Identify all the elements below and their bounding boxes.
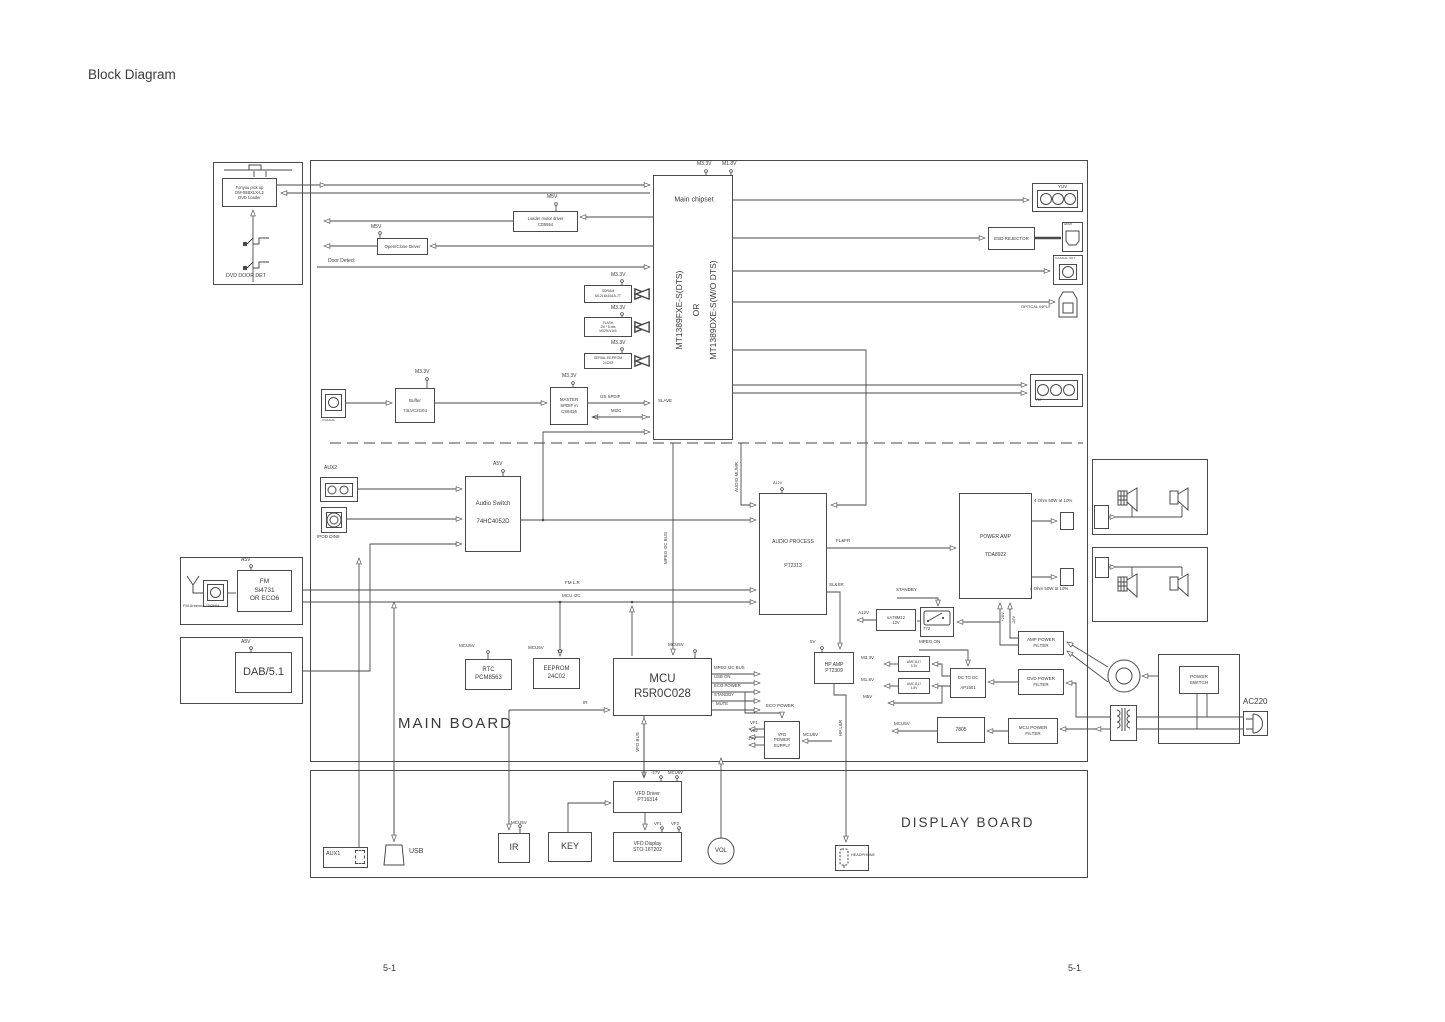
speaker-icon-1a bbox=[1118, 488, 1137, 511]
vfd-display-line-1: STO-16T202 bbox=[633, 847, 662, 854]
buffer-line-1: 74LVC2G04 bbox=[403, 408, 427, 414]
dvd-power-filter: DVD POWERFILTER bbox=[1018, 669, 1064, 695]
amc1117-18-line-1: 1.8V bbox=[911, 686, 918, 690]
mcu5v-supply: MCU5V bbox=[803, 733, 818, 737]
reg-7805: 7805 bbox=[937, 717, 985, 743]
footer-left: 5-1 bbox=[383, 964, 396, 973]
main-board-label: MAIN BOARD bbox=[398, 716, 513, 731]
speaker-icon-1b bbox=[1170, 488, 1188, 510]
serial-eeprom: SERIAL EEPROM24C02 bbox=[584, 353, 632, 369]
esd-rejector-line-0: ESD REJECTOR bbox=[994, 236, 1029, 242]
amc1117-33-line-1: 3.3V bbox=[911, 664, 918, 668]
slsr: SL&SR bbox=[829, 583, 844, 588]
esd-rejector: ESD REJECTOR bbox=[988, 227, 1035, 250]
key-block: KEY bbox=[548, 832, 592, 862]
ipod-din-icon bbox=[327, 513, 341, 527]
eeprom: EEPROM24C02 bbox=[533, 658, 580, 689]
m33-sdram: M3.3V bbox=[611, 273, 625, 278]
av-jacks-icon bbox=[1038, 385, 1075, 396]
dvd-power-filter-line-1: FILTER bbox=[1033, 682, 1048, 688]
eeprom-line-1: 24C02 bbox=[548, 674, 566, 682]
open-close-driver-line-0: Open/Close Driver bbox=[384, 244, 420, 250]
hp-amp: HP AMPPT2309 bbox=[814, 652, 854, 684]
vol-label: VOL bbox=[715, 848, 727, 854]
a12v-reg: A12V bbox=[858, 611, 869, 616]
fm-antenna-label: FM Antenna 75OHM bbox=[183, 604, 219, 608]
wires bbox=[228, 185, 1243, 847]
display-board-label: DISPLAY BOARD bbox=[901, 816, 1035, 830]
sdram: SDRAMM12L64164A-7T bbox=[584, 285, 632, 303]
dvd-loader: Fonyou pick upDM-06BXLX-L2DVD Loader bbox=[222, 178, 277, 207]
usb-label: USB bbox=[409, 848, 423, 855]
m5v-open-close: M5V bbox=[371, 225, 381, 230]
loader-motor-driver-line-1: CD5954 bbox=[538, 222, 553, 227]
m18-chipset: M1.8V bbox=[722, 162, 736, 167]
audio-switch-line-1: 74HC4052D bbox=[476, 519, 509, 527]
amc1117-33: AMC11173.3V bbox=[898, 656, 930, 672]
m33-amc: M3.3V bbox=[861, 656, 874, 661]
ir-receiver-line-0: IR bbox=[510, 842, 519, 854]
usb-connector-icon bbox=[384, 845, 404, 865]
standby-772: STANDBY bbox=[896, 588, 917, 593]
mcu-line-0: MCU bbox=[649, 672, 675, 687]
yuv-jacks-icon bbox=[1041, 194, 1076, 205]
coaxial-out-label: COAXIAL OUT bbox=[1055, 257, 1075, 260]
page-title: Block Diagram bbox=[88, 68, 176, 82]
amc1117-18: AMC11171.8V bbox=[898, 678, 930, 694]
dc-to-dc-line-1: AP1501 bbox=[960, 685, 975, 691]
flfr: FL&FR bbox=[836, 539, 850, 544]
m33-serial: M3.3V bbox=[611, 341, 625, 346]
audio-ml-mr: AUDIO ML/MR bbox=[735, 462, 740, 492]
speaker-icon-2a bbox=[1118, 574, 1137, 597]
mcu5v-mcu: MCU5V bbox=[668, 643, 684, 648]
m33-flash: M3.3V bbox=[611, 306, 625, 311]
ipod-label: IPOD DIN9 bbox=[317, 535, 340, 540]
fm-tuner-line-0: FM bbox=[260, 578, 269, 586]
serial-eeprom-line-1: 24C02 bbox=[603, 361, 613, 366]
mcu-power-filter-line-1: FILTER bbox=[1025, 731, 1040, 737]
vfd-bus: VFD BUS bbox=[636, 732, 641, 752]
m33-spdif: M3.3V bbox=[562, 374, 576, 379]
power-pins bbox=[250, 170, 824, 833]
optical-connector-icon bbox=[1059, 292, 1077, 317]
aux1-label: AUX1 bbox=[326, 852, 340, 858]
out-mpeg-i2c: MPEG I2C BUS bbox=[714, 666, 745, 670]
connector-glyphs bbox=[187, 165, 1263, 868]
slave: SLAVE bbox=[658, 399, 672, 404]
reg-7805-line-0: 7805 bbox=[955, 727, 966, 734]
vfd-driver: VFD DriverPT16314 bbox=[613, 781, 682, 813]
mcu5v-driver: MCU5V bbox=[668, 771, 683, 775]
open-close-driver: Open/Close Driver bbox=[377, 238, 428, 255]
mcu-power-filter: MCU POWERFILTER bbox=[1008, 718, 1058, 744]
vf2-display: VF2 bbox=[671, 822, 679, 826]
mcu5v-rtc: MCU5V bbox=[459, 644, 475, 649]
mcu5v-eeprom: MCU5V bbox=[528, 646, 544, 651]
vfd-driver-line-1: PT16314 bbox=[637, 797, 657, 804]
hdmi-plug-icon bbox=[1066, 231, 1079, 245]
sdram-line-1: M12L64164A-7T bbox=[595, 294, 621, 299]
mpeg-i2c-vert: MPEG I2C BUS bbox=[664, 532, 669, 564]
v5-hpamp: 5V bbox=[810, 640, 816, 645]
vfd-power-supply-line-2: SUPPLY bbox=[774, 743, 791, 749]
ua78m12: uA78M1212V bbox=[876, 609, 916, 631]
buffer-line-0: Buffer bbox=[409, 398, 421, 404]
ir-receiver: IR bbox=[498, 833, 530, 863]
m33-buffer: M3.3V bbox=[415, 370, 429, 375]
fm-tuner-line-2: OR ECO6 bbox=[250, 595, 279, 603]
power-plug-icon bbox=[1246, 714, 1263, 733]
m5v-loader-driver: M5V bbox=[547, 195, 557, 200]
amp-power-filter-line-1: FILTER bbox=[1033, 643, 1048, 649]
eeprom-line-0: EEPROM bbox=[543, 666, 569, 674]
block-diagram-page: Fonyou pick upDM-06BXLX-L2DVD LoaderLoad… bbox=[0, 0, 1445, 1022]
mcu5v-ir: MCU5V bbox=[511, 821, 527, 826]
i2s-spdif: I2S SPDIF bbox=[600, 395, 620, 399]
aux2-jacks-icon bbox=[328, 486, 348, 494]
dab-module-line-0: DAB/5.1 bbox=[243, 665, 284, 679]
vf2: VF2 bbox=[750, 729, 758, 733]
dc-to-dc-line-0: DC TO DC bbox=[958, 675, 979, 681]
disc-mechanism-icon bbox=[224, 165, 292, 177]
m33-chipset: M3.3V bbox=[697, 162, 711, 167]
minus27-driver: -27V bbox=[651, 771, 660, 775]
mcu5v-7805: MCU5V bbox=[894, 722, 910, 727]
flash-line-2: MX29LV160 bbox=[599, 329, 616, 333]
aux2-label: AUX2 bbox=[324, 466, 337, 471]
loader-motor-driver: Loader motor driverCD5954 bbox=[513, 211, 578, 232]
speaker-icon-2b bbox=[1170, 574, 1188, 596]
chipset-or: OR bbox=[692, 304, 701, 317]
chipset-model-a: MT1389FXE-S(DTS) bbox=[675, 271, 684, 350]
a12v-process: A12V bbox=[773, 482, 782, 486]
hp-amp-line-1: PT2309 bbox=[825, 668, 843, 675]
coaxial-in-jack-icon bbox=[329, 398, 339, 408]
master-spdif-line-2: CS8416 bbox=[561, 409, 577, 415]
door-detect: Door Detect bbox=[328, 259, 355, 264]
dvd-door-det: DVD DOOR DET bbox=[226, 274, 266, 279]
mcu-i2c: MCU I2C bbox=[562, 594, 581, 599]
dab-module: DAB/5.1 bbox=[235, 652, 292, 693]
headphone-jack-icon bbox=[840, 849, 848, 868]
flash: FLASH2M * 8 bitsMX29LV160 bbox=[584, 317, 632, 337]
hp-lr: HP L&R bbox=[839, 720, 844, 736]
power-switch: POWERSWITCH bbox=[1179, 666, 1219, 694]
yuv-label: YUV bbox=[1058, 185, 1067, 190]
m18-amc: M1.8V bbox=[861, 678, 874, 683]
rtc-line-1: PCM8563 bbox=[475, 675, 502, 683]
rtc: RTCPCM8563 bbox=[465, 659, 512, 690]
coaxial-out-jack-icon bbox=[1063, 267, 1074, 278]
mi2c: MI2C bbox=[611, 409, 621, 413]
audio-switch-line-0: Audio Switch bbox=[476, 501, 511, 509]
fm-tuner: FMSi4731OR ECO6 bbox=[237, 570, 292, 612]
vfd-power-supply: VFDPOWERSUPPLY bbox=[764, 721, 800, 759]
audio-process-line-1: PT2313 bbox=[784, 563, 802, 570]
power-amp: POWER AMPTDA8922 bbox=[959, 493, 1032, 599]
out-eco-power: ECO POWER bbox=[714, 684, 741, 688]
a5v-fm: A5V bbox=[241, 558, 250, 563]
relay-switch-icon bbox=[924, 611, 950, 625]
a5v-switch: A5V bbox=[493, 462, 502, 467]
out-usb-on: USB ON bbox=[714, 675, 730, 679]
chipset-model-b: MT1389DXE-S(W/O DTS) bbox=[709, 260, 718, 359]
master-spdif: MASTERSPDIF inCS8416 bbox=[550, 387, 588, 425]
vf1: VF1 bbox=[750, 721, 758, 725]
door-switch-icon bbox=[243, 238, 269, 246]
fm-antenna-jack-icon bbox=[211, 588, 221, 598]
antenna-icon bbox=[187, 576, 203, 593]
power-switch-line-1: SWITCH bbox=[1190, 680, 1209, 686]
coaxial-in-label: COAXIAL bbox=[322, 419, 335, 422]
relay-772-label: 772 bbox=[923, 627, 930, 631]
ir-signal: IR bbox=[583, 701, 588, 706]
wiring-layer bbox=[0, 0, 1445, 1022]
fm-lr: FM L.R bbox=[565, 581, 580, 586]
minus-26v: -26V bbox=[1013, 616, 1017, 624]
power-amp-line-0: POWER AMP bbox=[980, 534, 1011, 541]
amp-power-filter: AMP POWERFILTER bbox=[1018, 631, 1064, 655]
optical-input-label: OPTICAL INPUT bbox=[1021, 305, 1051, 309]
ac220-label: AC220 bbox=[1243, 698, 1267, 706]
ua78m12-line-1: 12V bbox=[892, 620, 899, 625]
buffer: Buffer74LVC2G04 bbox=[395, 388, 435, 423]
m5v-dcdc: M5V bbox=[863, 695, 872, 700]
vf1-display: VF1 bbox=[654, 822, 662, 826]
ohm-top: 4 Ohm 50W at 10% bbox=[1034, 499, 1072, 503]
dvd-loader-line-2: DVD Loader bbox=[238, 195, 261, 200]
audio-process-line-0: AUDIO PROCESS bbox=[772, 539, 814, 546]
door-switch-icon-2 bbox=[243, 262, 269, 270]
a5v-dab: A5V bbox=[241, 640, 250, 645]
ohm-bottom: 4 Ohm 50W at 10% bbox=[1030, 587, 1068, 591]
headphone-label: HEADPHONE bbox=[851, 854, 875, 858]
out-mute: MUTE bbox=[716, 702, 728, 706]
rtc-line-0: RTC bbox=[482, 667, 494, 675]
vfd-display: VFD DisplaySTO-16T202 bbox=[613, 832, 682, 862]
fm-tuner-line-1: Si4731 bbox=[254, 587, 274, 595]
av-label: AV bbox=[1036, 398, 1041, 402]
hdmi-label: HDMI bbox=[1064, 223, 1072, 226]
mcu: MCUR5R0C028 bbox=[613, 658, 712, 716]
out-standby: STANDBY bbox=[714, 693, 734, 697]
footer-right: 5-1 bbox=[1068, 964, 1081, 973]
mpeg-on: MPEG ON bbox=[919, 640, 940, 645]
dc-to-dc: DC TO DCAP1501 bbox=[950, 668, 986, 698]
toroid-transformer-icon bbox=[1108, 660, 1140, 692]
mcu-line-1: R5R0C028 bbox=[634, 687, 691, 702]
audio-process: AUDIO PROCESSPT2313 bbox=[759, 493, 827, 615]
minus27: -27V bbox=[747, 737, 756, 741]
key-block-line-0: KEY bbox=[561, 841, 579, 853]
chipset-title: Main chipset bbox=[674, 197, 713, 204]
plus-26v: +26V bbox=[1002, 613, 1006, 622]
power-amp-line-1: TDA8922 bbox=[985, 552, 1006, 559]
audio-switch: Audio Switch74HC4052D bbox=[465, 476, 521, 552]
eco-power-supply: ECO POWER bbox=[766, 704, 794, 709]
transformer-icon bbox=[1117, 708, 1130, 731]
